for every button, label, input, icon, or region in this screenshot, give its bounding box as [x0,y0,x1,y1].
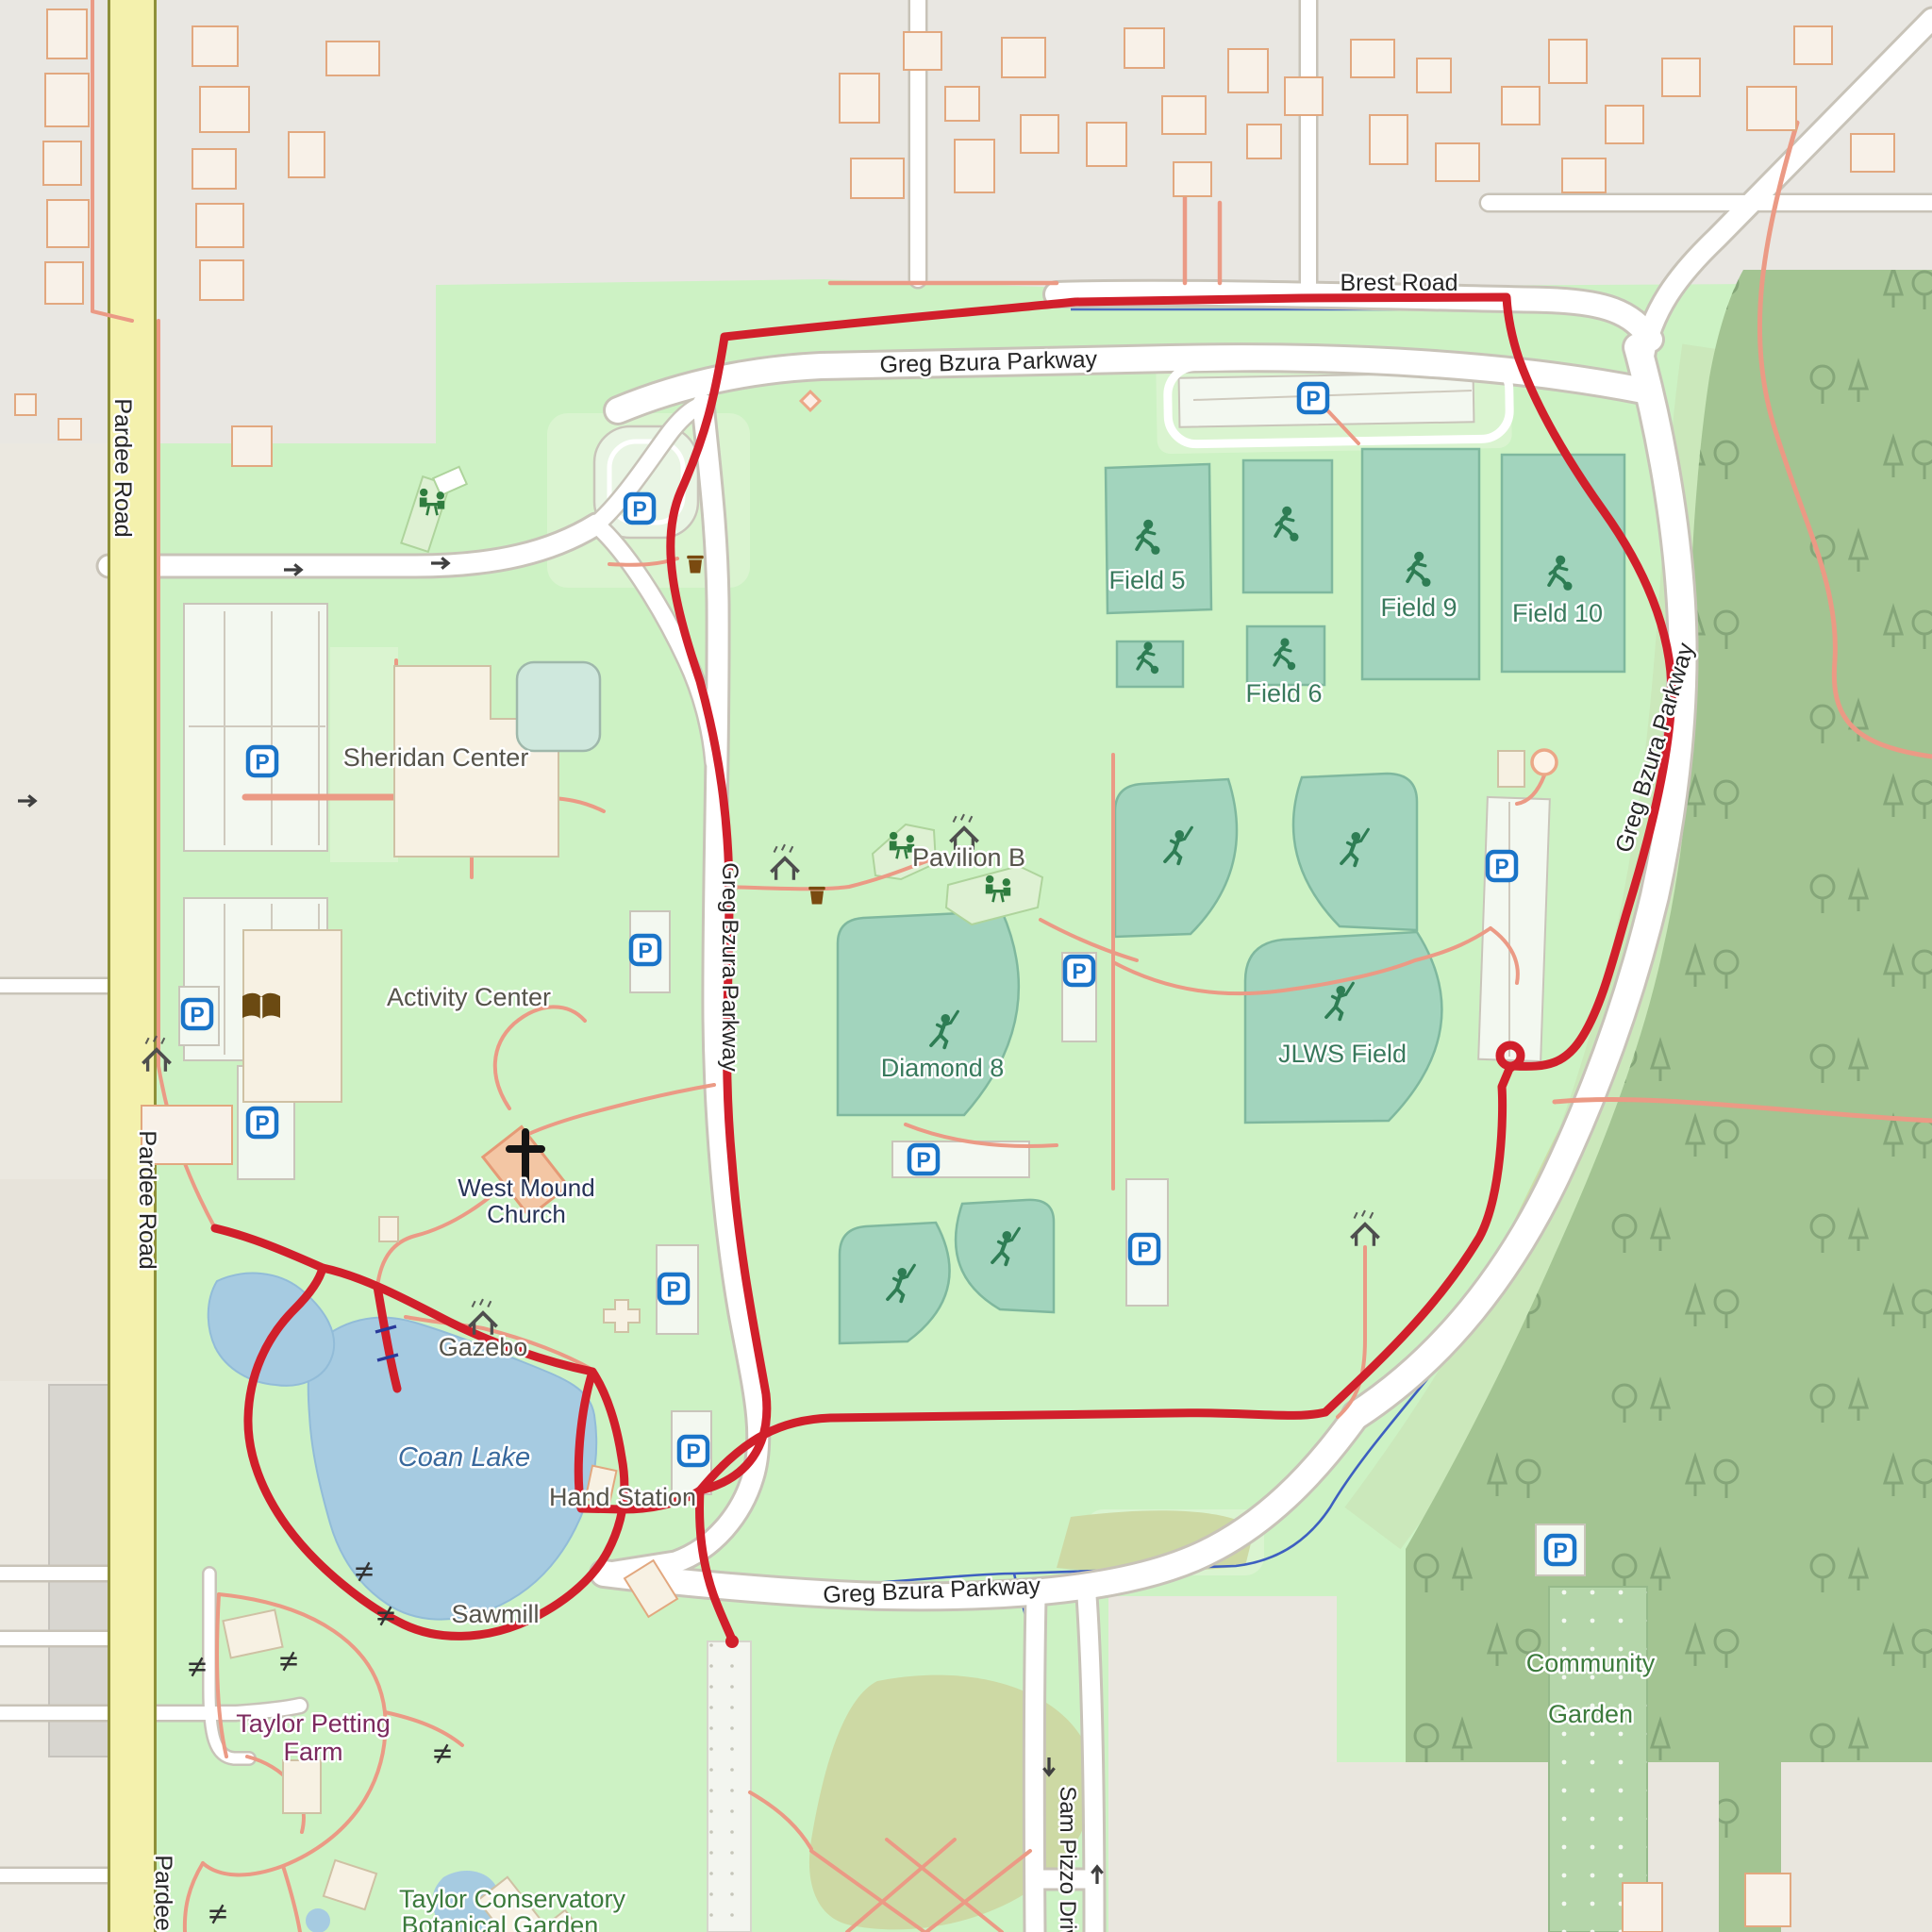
field-6-north [1243,460,1332,592]
label-diamond-8: Diamond 8 [881,1054,1005,1082]
field-6 [1247,626,1324,685]
label-field-10: Field 10 [1512,599,1603,627]
small-pond [306,1908,330,1932]
label-field-9: Field 9 [1380,593,1457,622]
label-hand-station: Hand Station [549,1483,696,1511]
label-taylor-petting-farm-1: Taylor Petting [236,1709,391,1738]
label-brest-road: Brest Road [1340,270,1457,296]
label-pardee-road-1: Pardee Road [109,398,136,537]
label-west-mound-church-2: Church [487,1200,566,1228]
label-pardee-road-3: Pardee Road [150,1855,176,1932]
garden-plots-strip [708,1641,751,1932]
label-coan-lake: Coan Lake [398,1442,530,1473]
label-activity-center: Activity Center [387,983,551,1011]
pool [517,662,600,751]
map-viewport[interactable]: P [0,0,1932,1932]
community-garden-strip [1549,1587,1647,1932]
label-sheridan-center: Sheridan Center [343,743,529,772]
route-endpoint [725,1635,739,1648]
label-taylor-petting-farm-2: Farm [284,1738,343,1766]
label-sawmill: Sawmill [451,1600,539,1628]
label-greg-bzura-vertical: Greg Bzura Parkway [717,862,742,1071]
label-pardee-road-2: Pardee Road [134,1130,160,1269]
label-sam-pizzo-drive: Sam Pizzo Drive [1055,1786,1080,1932]
label-west-mound-church-1: West Mound [458,1174,594,1202]
label-pavilion-b: Pavilion B [912,843,1025,872]
label-jlws-field: JLWS Field [1278,1040,1407,1068]
label-conservatory-2: Botanical Garden [402,1911,599,1932]
label-gazebo: Gazebo [439,1333,528,1361]
street-lamp-icon [1532,750,1557,774]
label-community-garden-2: Garden [1548,1700,1633,1728]
label-field-6: Field 6 [1245,679,1322,708]
label-community-garden-1: Community [1526,1649,1656,1677]
label-conservatory-1: Taylor Conservatory [399,1885,626,1913]
label-field-5: Field 5 [1108,566,1185,594]
map-canvas[interactable]: P [0,0,1932,1932]
